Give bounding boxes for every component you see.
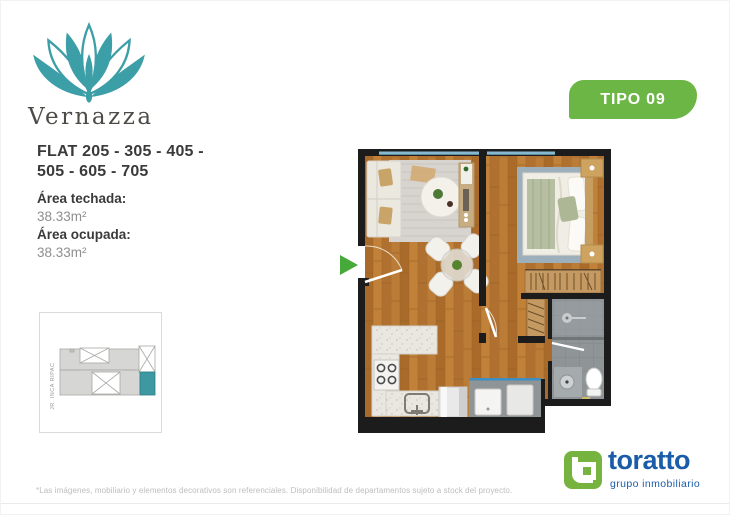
laundry-area [469,378,541,417]
area-info: Área techada: 38.33m² Área ocupada: 38.3… [37,190,237,262]
plant-icon [464,167,469,172]
tipo-badge: TIPO 09 [569,80,697,119]
site-plan-map: JR. INCA RIPAC [39,312,162,433]
footer-divider [1,503,730,504]
flat-title-line1: FLAT 205 - 305 - 405 - [37,142,272,162]
toratto-wordmark: toratto [608,445,690,476]
toratto-logo-icon [564,451,602,489]
area-techada-label: Área techada: [37,190,237,208]
area-techada-value: 38.33m² [37,208,237,226]
washer-icon [475,389,501,415]
unit-highlight [140,372,155,395]
plant-icon [452,260,462,270]
flat-title: FLAT 205 - 305 - 405 - 505 - 605 - 705 [37,142,272,182]
sofa-pillow [378,206,393,224]
lotus-logo-icon [31,17,147,109]
floor-plan [355,147,613,433]
toilet-icon [586,368,602,390]
windows [379,152,555,155]
sofa-pillow [378,168,393,187]
dryer-icon [507,385,533,415]
area-ocupada-label: Área ocupada: [37,226,237,244]
toratto-glyph-ring [578,462,596,480]
building-outline [40,313,161,432]
bedroom [517,159,603,263]
bedroom-window [487,152,555,155]
living-room [367,160,474,242]
kitchen-counter [372,326,437,354]
plant-icon [433,189,443,199]
tipo-badge-label: TIPO 09 [600,91,665,109]
toratto-tagline: grupo inmobiliario [610,478,700,490]
street-label: JR. INCA RIPAC [50,362,56,410]
area-ocupada-value: 38.33m² [37,244,237,262]
living-window [379,152,479,155]
laundry-window [469,378,541,381]
disclaimer-text: *Las imágenes, mobiliario y elementos de… [36,486,512,495]
headboard [585,171,593,257]
flat-title-line2: 505 - 605 - 705 [37,162,272,182]
brand-wordmark: Vernazza [28,104,188,130]
brochure-page: Vernazza FLAT 205 - 305 - 405 - 505 - 60… [0,0,730,515]
stove-icon [374,360,399,390]
